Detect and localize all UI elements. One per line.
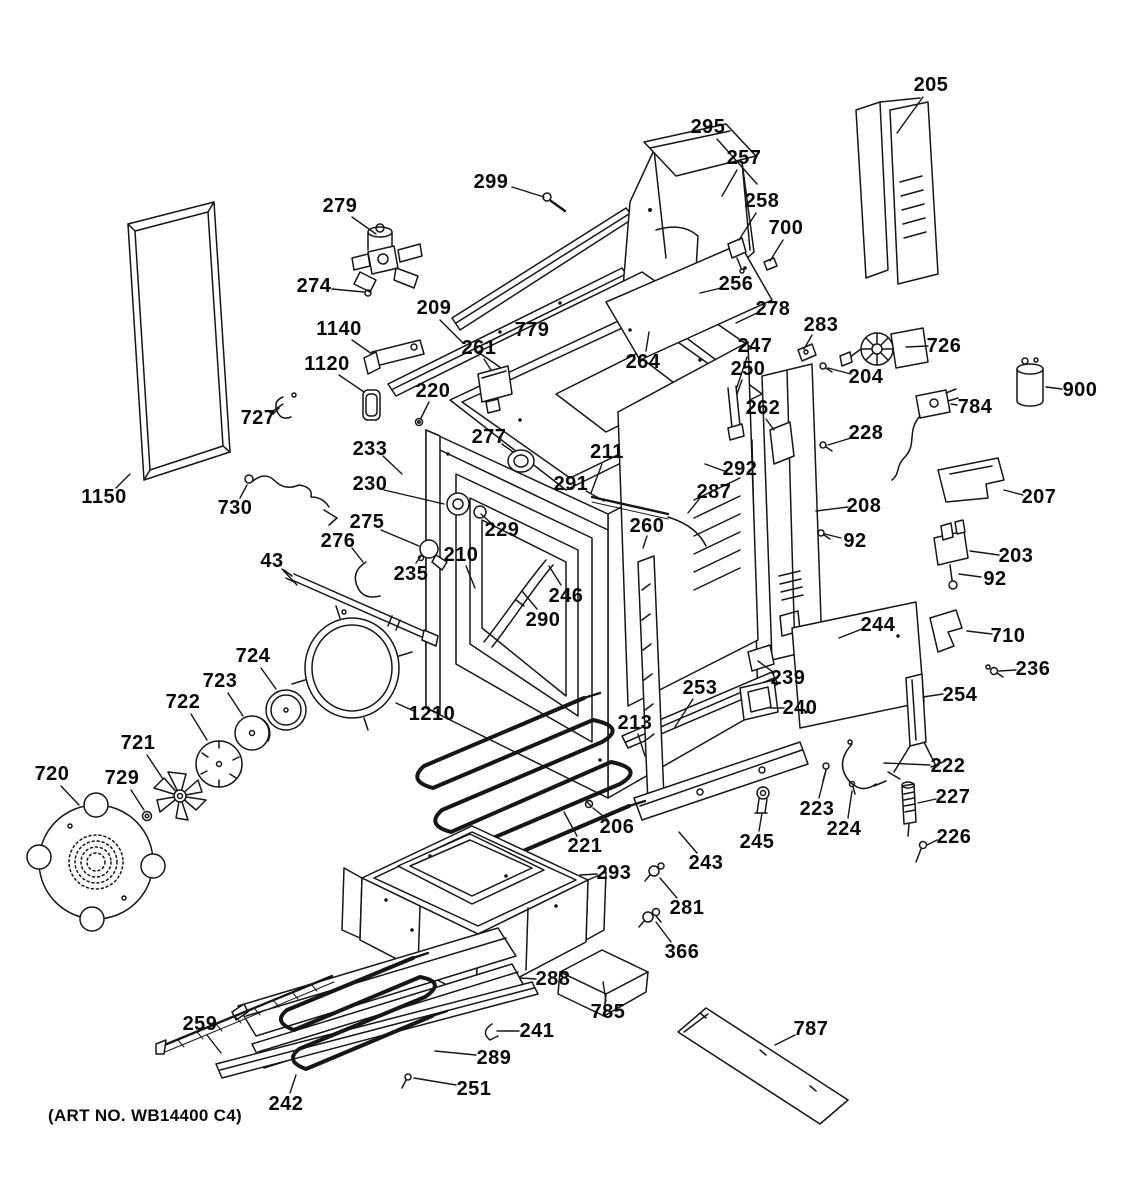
leader-line-243 (679, 832, 697, 853)
leader-line-900 (1046, 387, 1062, 389)
part-label-226: 226 (937, 827, 972, 847)
leader-line-235 (416, 556, 421, 563)
part-label-211: 211 (590, 442, 624, 462)
leader-line-785 (603, 982, 606, 1001)
part-label-92: 92 (983, 569, 1006, 589)
part-label-900: 900 (1063, 380, 1098, 400)
leader-line-700 (770, 240, 783, 261)
part-label-290: 290 (526, 610, 561, 630)
part-label-279: 279 (323, 196, 358, 216)
leader-line-261 (484, 359, 491, 370)
leader-line-244 (839, 629, 862, 638)
part-label-261: 261 (462, 338, 497, 358)
leader-line-213 (638, 734, 645, 756)
part-label-210: 210 (444, 545, 479, 565)
part-label-293: 293 (597, 863, 632, 883)
part-label-221: 221 (568, 836, 603, 856)
leader-line-203 (970, 551, 999, 555)
part-label-43: 43 (260, 551, 283, 571)
leader-line-1120 (339, 375, 364, 392)
part-label-258: 258 (745, 191, 780, 211)
part-label-785: 785 (591, 1002, 626, 1022)
part-label-223: 223 (800, 799, 835, 819)
part-label-730: 730 (218, 498, 253, 518)
leader-line-43 (282, 569, 297, 585)
leader-line-205 (897, 97, 923, 133)
part-label-724: 724 (236, 646, 271, 666)
leader-line-726 (906, 346, 928, 347)
part-label-257: 257 (727, 148, 762, 168)
leader-line-293 (580, 874, 597, 875)
leader-line-291 (586, 491, 604, 501)
part-label-723: 723 (203, 671, 238, 691)
part-label-276: 276 (321, 531, 356, 551)
leader-line-259 (207, 1035, 221, 1053)
part-label-250: 250 (731, 359, 766, 379)
part-label-233: 233 (353, 439, 388, 459)
leader-line-281 (660, 878, 677, 898)
part-label-256: 256 (719, 274, 754, 294)
part-label-92: 92 (843, 531, 866, 551)
leader-line-710 (967, 631, 992, 634)
part-label-289: 289 (477, 1048, 512, 1068)
part-label-241: 241 (520, 1021, 555, 1041)
art-number-note: (ART NO. WB14400 C4) (48, 1106, 242, 1126)
leader-line-723 (228, 693, 243, 716)
part-label-207: 207 (1022, 487, 1057, 507)
part-label-205: 205 (914, 75, 949, 95)
part-label-275: 275 (350, 512, 385, 532)
leader-line-204 (828, 368, 851, 374)
leader-line-722 (191, 714, 207, 740)
leader-line-262 (766, 419, 774, 430)
part-label-251: 251 (457, 1079, 492, 1099)
part-label-220: 220 (416, 381, 451, 401)
leader-line-223 (819, 774, 825, 798)
leader-line-260 (643, 536, 647, 548)
leader-line-283 (804, 335, 812, 349)
part-label-700: 700 (769, 218, 804, 238)
leader-line-264 (646, 332, 649, 351)
leader-line-289 (435, 1051, 476, 1055)
leader-line-274 (332, 289, 364, 292)
part-label-227: 227 (936, 787, 971, 807)
part-label-278: 278 (756, 299, 791, 319)
leader-line-210 (466, 566, 475, 588)
part-label-287: 287 (697, 482, 732, 502)
part-label-254: 254 (943, 685, 978, 705)
leader-line-236 (999, 670, 1016, 671)
part-label-1140: 1140 (316, 319, 361, 339)
leader-line-1140 (352, 340, 372, 354)
part-label-784: 784 (958, 397, 993, 417)
part-label-1120: 1120 (304, 354, 349, 374)
leader-line-257 (722, 170, 737, 196)
part-label-229: 229 (485, 520, 520, 540)
part-label-281: 281 (670, 898, 705, 918)
leader-line-222 (884, 763, 930, 765)
leader-line-787 (775, 1035, 795, 1045)
leader-line-228 (828, 438, 851, 445)
part-label-292: 292 (723, 459, 758, 479)
part-label-259: 259 (183, 1014, 218, 1034)
part-label-203: 203 (999, 546, 1034, 566)
leader-line-721 (147, 755, 163, 779)
leader-line-784 (951, 404, 957, 405)
part-label-243: 243 (689, 853, 724, 873)
leader-line-288 (520, 978, 536, 979)
leader-line-251 (414, 1078, 456, 1085)
part-label-244: 244 (861, 615, 896, 635)
part-label-262: 262 (746, 398, 781, 418)
part-label-253: 253 (683, 678, 718, 698)
leader-line-230 (384, 490, 444, 504)
part-label-264: 264 (626, 352, 661, 372)
part-label-260: 260 (630, 516, 665, 536)
part-label-228: 228 (849, 423, 884, 443)
part-label-291: 291 (554, 474, 589, 494)
leader-line-275 (381, 530, 419, 546)
part-label-729: 729 (105, 768, 140, 788)
leader-line-226 (927, 840, 937, 845)
part-label-295: 295 (691, 117, 726, 137)
part-label-721: 721 (121, 733, 156, 753)
leader-line-246 (549, 566, 561, 585)
part-label-235: 235 (394, 564, 429, 584)
part-label-710: 710 (991, 626, 1026, 646)
leader-line-92 (959, 574, 981, 577)
leader-line-242 (290, 1075, 296, 1093)
leader-line-224 (848, 791, 852, 818)
leader-line-208 (816, 507, 848, 511)
leader-line-724 (261, 668, 276, 689)
part-label-240: 240 (783, 698, 818, 718)
leader-line-227 (918, 799, 936, 803)
leader-line-278 (736, 313, 757, 323)
part-label-366: 366 (665, 942, 700, 962)
part-label-727: 727 (241, 408, 276, 428)
part-label-274: 274 (297, 276, 332, 296)
leader-line-720 (61, 786, 79, 805)
leader-line-245 (759, 813, 762, 831)
leader-line-209 (440, 320, 463, 343)
leader-line-366 (656, 922, 671, 942)
part-label-239: 239 (771, 668, 806, 688)
leader-line-220 (421, 402, 429, 418)
leader-line-299 (512, 187, 544, 197)
part-label-247: 247 (738, 336, 773, 356)
part-label-230: 230 (353, 474, 388, 494)
part-label-213: 213 (618, 713, 653, 733)
leader-line-211 (591, 464, 602, 493)
leader-line-279 (352, 217, 376, 234)
part-label-283: 283 (804, 315, 839, 335)
part-label-779: 779 (515, 320, 550, 340)
part-label-204: 204 (849, 367, 884, 387)
part-label-236: 236 (1016, 659, 1051, 679)
part-label-222: 222 (931, 756, 966, 776)
leader-line-253 (675, 699, 693, 727)
part-label-299: 299 (474, 172, 509, 192)
part-label-206: 206 (600, 817, 635, 837)
parts-diagram-canvas: 2052952572992587002792742562782837262091… (0, 0, 1125, 1200)
leader-line-290 (522, 591, 537, 609)
part-label-1210: 1210 (409, 704, 456, 724)
leader-line-207 (1004, 490, 1023, 495)
leader-line-729 (131, 790, 144, 810)
part-label-1150: 1150 (81, 487, 126, 507)
leader-line-250 (737, 380, 742, 394)
part-label-720: 720 (35, 764, 70, 784)
part-label-242: 242 (269, 1094, 304, 1114)
part-label-209: 209 (417, 298, 452, 318)
part-label-288: 288 (536, 969, 571, 989)
part-label-245: 245 (740, 832, 775, 852)
part-label-787: 787 (794, 1019, 829, 1039)
part-label-722: 722 (166, 692, 201, 712)
leader-line-258 (739, 213, 756, 240)
part-label-246: 246 (549, 586, 584, 606)
part-label-277: 277 (472, 427, 507, 447)
leader-line-92 (825, 534, 841, 538)
leader-line-221 (564, 812, 577, 836)
part-label-224: 224 (827, 819, 862, 839)
part-label-208: 208 (847, 496, 882, 516)
part-label-726: 726 (927, 336, 962, 356)
leader-line-254 (923, 694, 943, 697)
